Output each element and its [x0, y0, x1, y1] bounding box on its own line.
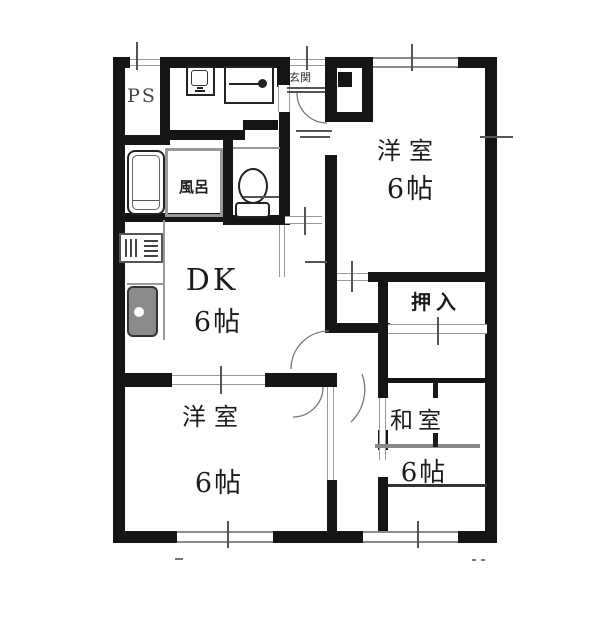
western-bottom-label: 洋室 [174, 397, 254, 432]
entrance-label: 玄関 [281, 69, 319, 85]
western-top-size-label: 6帖 [371, 167, 451, 206]
japanese-size-label: 6帖 [384, 452, 464, 489]
bath-label: 風呂 [170, 176, 218, 197]
floor-plan: PS 玄関 風呂 DK 6帖 洋室 6帖 洋室 6帖 和室 6帖 押入 [0, 0, 616, 627]
closet-label: 押入 [398, 286, 474, 315]
ps-label: PS [120, 85, 164, 107]
dk-label: DK [172, 263, 252, 298]
dk-size-label: 6帖 [178, 300, 258, 339]
western-top-label: 洋室 [369, 131, 449, 166]
japanese-label: 和室 [380, 401, 456, 435]
door-arcs [0, 0, 616, 627]
western-bottom-size-label: 6帖 [179, 461, 259, 500]
